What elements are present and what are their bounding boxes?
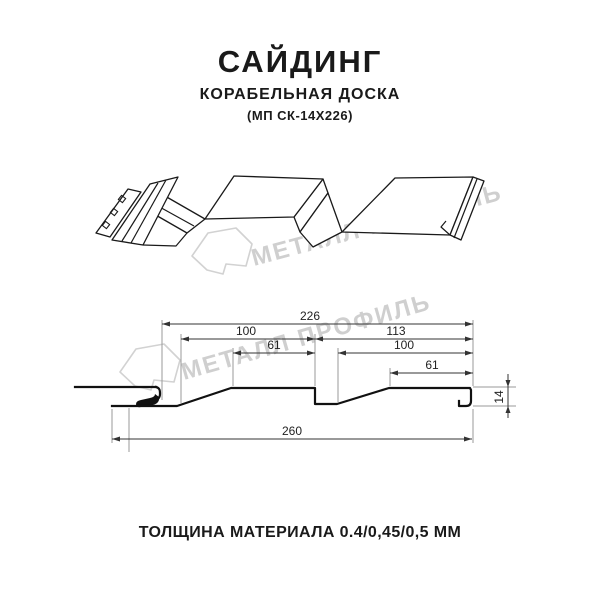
- dimension-61-right: 61: [390, 358, 473, 376]
- technical-drawing: МЕТАЛЛ ПРОФИЛЬ МЕТАЛЛ П: [0, 0, 600, 600]
- metall-profil-logo-icon: [192, 228, 252, 274]
- svg-text:14: 14: [492, 390, 506, 404]
- svg-text:100: 100: [394, 338, 414, 352]
- svg-text:61: 61: [267, 338, 281, 352]
- material-thickness-note: ТОЛЩИНА МАТЕРИАЛА 0.4/0,45/0,5 ММ: [0, 524, 600, 542]
- dimension-14: 14: [492, 374, 511, 418]
- svg-text:61: 61: [425, 358, 439, 372]
- metall-profil-logo-icon: [120, 344, 180, 390]
- svg-text:260: 260: [282, 424, 302, 438]
- product-drawing-page: { "page": { "background": "#ffffff", "li…: [0, 0, 600, 600]
- svg-text:100: 100: [236, 324, 256, 338]
- profile-outline: [75, 387, 471, 407]
- svg-text:226: 226: [300, 309, 320, 323]
- dimension-100-right: 100: [338, 338, 473, 356]
- svg-text:113: 113: [386, 324, 405, 338]
- dimension-260: 260: [112, 424, 472, 442]
